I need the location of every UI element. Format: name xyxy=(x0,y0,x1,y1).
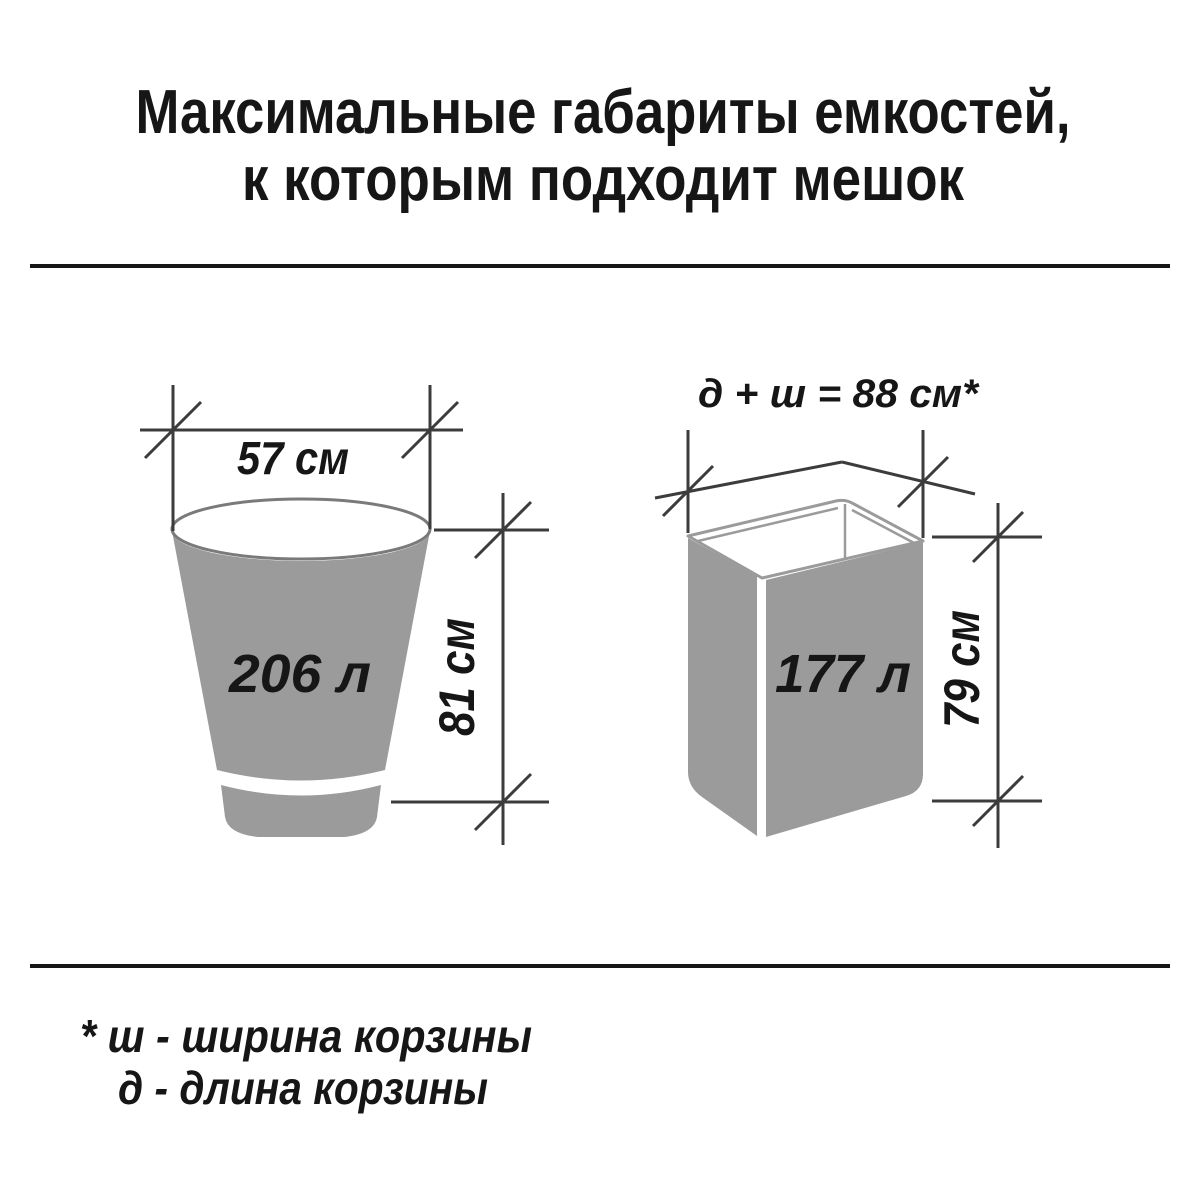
dim-line xyxy=(842,462,975,494)
page-title-line-1: Максимальные габариты емкостей, xyxy=(136,78,1071,147)
box-formula-label: д + ш = 88 см* xyxy=(698,372,980,416)
infographic-page: Максимальные габариты емкостей, к которы… xyxy=(0,0,1200,1200)
box-left-face xyxy=(688,538,757,836)
bucket-rim-ellipse xyxy=(172,499,430,559)
footnote-line-2: д - длина корзины xyxy=(118,1062,488,1114)
bucket-width-label: 57 см xyxy=(237,432,349,484)
box-volume-label: 177 л xyxy=(775,644,911,704)
diagram-canvas: Максимальные габариты емкостей, к которы… xyxy=(0,0,1200,1200)
bucket-volume-label: 206 л xyxy=(228,644,371,704)
bucket-base xyxy=(221,785,381,837)
page-title-line-2: к которым подходит мешок xyxy=(242,145,965,214)
footnote-line-1: * ш - ширина корзины xyxy=(80,1010,532,1062)
box-height-label: 79 см xyxy=(934,610,990,728)
bucket-height-label: 81 см xyxy=(429,618,485,736)
dim-line xyxy=(655,462,842,498)
